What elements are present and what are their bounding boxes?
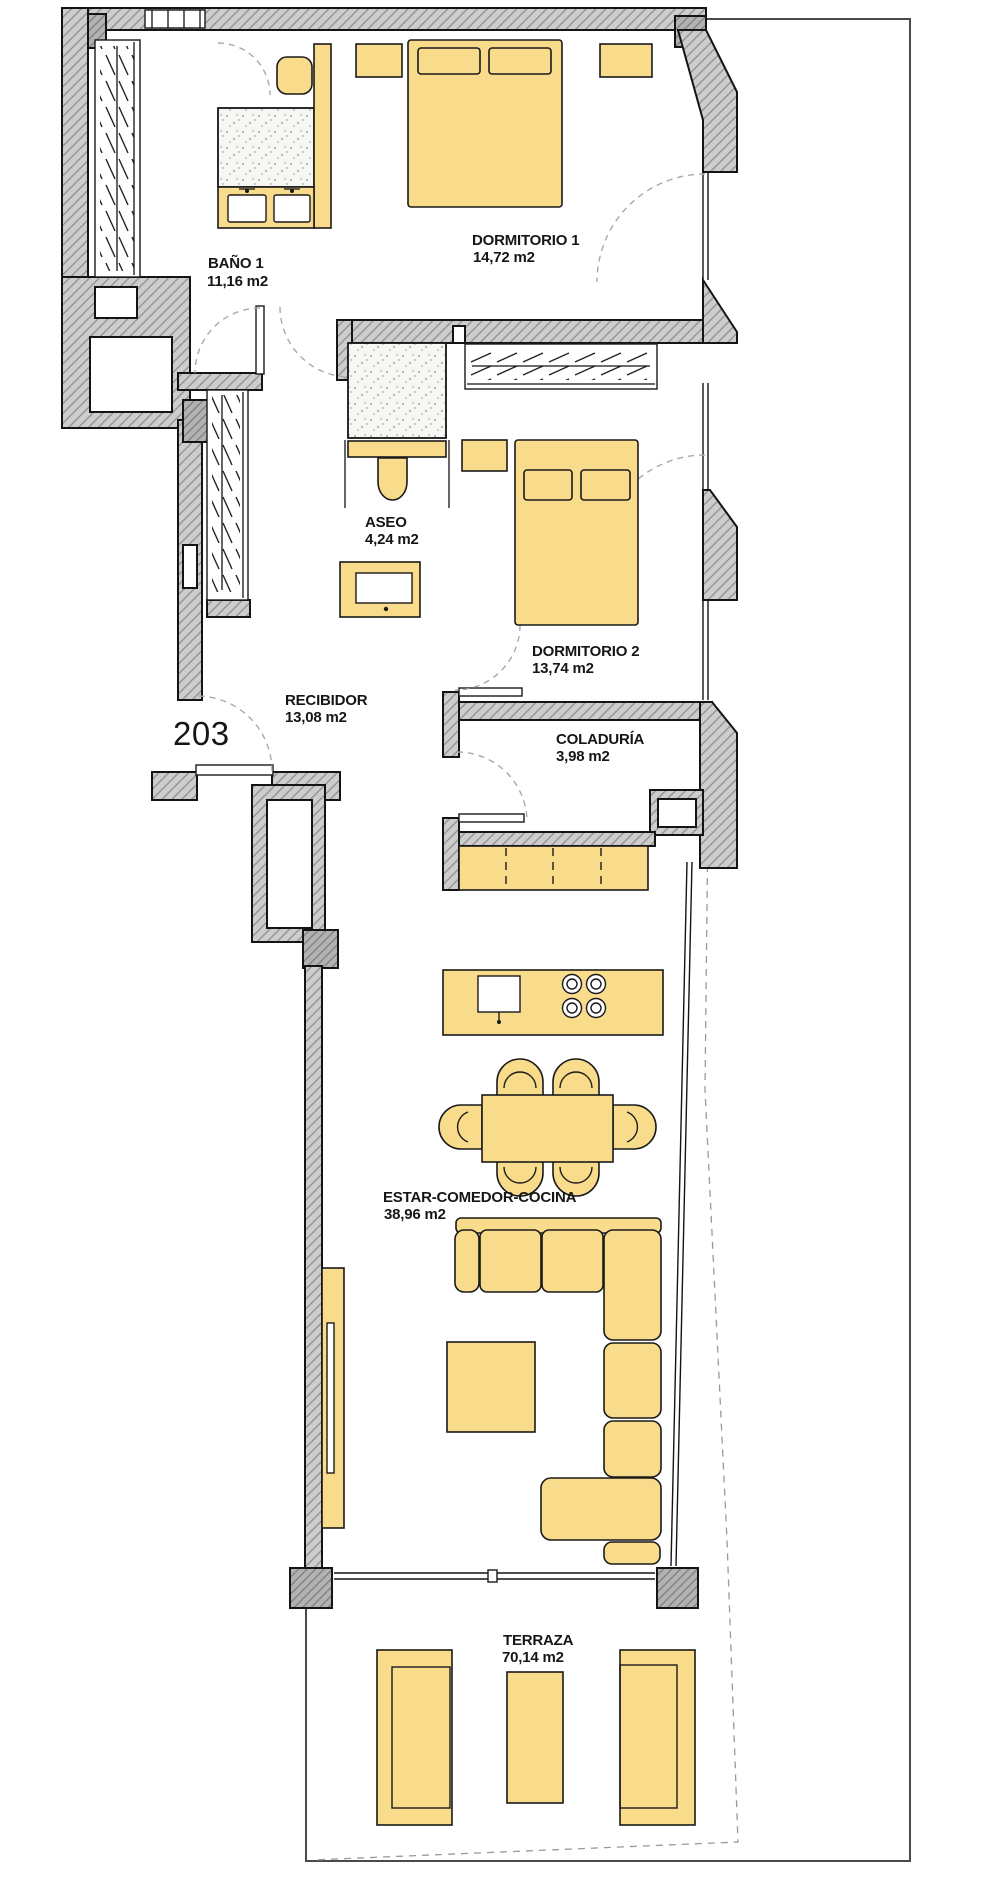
room-label-estar-area: 38,96 m2 xyxy=(384,1206,446,1223)
room-label-terraza-area: 70,14 m2 xyxy=(502,1649,564,1666)
window-dorm2-a xyxy=(703,383,708,490)
pillow xyxy=(581,470,630,500)
bathroom1-fixtures xyxy=(218,44,331,228)
sink-icon xyxy=(356,573,412,603)
room-label-recibidor-name: RECIBIDOR xyxy=(285,692,368,709)
room-label-dorm2-name: DORMITORIO 2 xyxy=(532,643,639,660)
sofa-chaise xyxy=(541,1478,661,1540)
sink-icon xyxy=(274,195,310,222)
room-label-recibidor-area: 13,08 m2 xyxy=(285,709,347,726)
wall-shaft xyxy=(90,337,172,412)
dining-set xyxy=(439,1059,656,1196)
sofa-seat xyxy=(542,1230,603,1292)
wall-step xyxy=(703,280,737,343)
tv-screen xyxy=(327,1323,334,1473)
sink-icon xyxy=(478,976,520,1012)
glass-wall-living xyxy=(671,862,692,1566)
pillow xyxy=(524,470,572,500)
room-label-dorm2-area: 13,74 m2 xyxy=(532,660,594,677)
bed-double xyxy=(515,440,638,625)
sofa-corner xyxy=(604,1230,661,1340)
wall-coladuria-right xyxy=(700,702,737,868)
shower-tray xyxy=(218,108,314,187)
nightstand xyxy=(356,44,402,77)
sink-icon xyxy=(228,195,266,222)
dorm2-furniture xyxy=(462,440,638,625)
shower-tray xyxy=(348,343,446,438)
column xyxy=(657,1568,698,1608)
aseo-fixtures xyxy=(340,343,449,617)
sun-lounger xyxy=(620,1650,695,1825)
toilet-icon xyxy=(378,458,407,500)
room-label-bano1-name: BAÑO 1 xyxy=(208,254,263,272)
room-label-aseo-area: 4,24 m2 xyxy=(365,531,419,548)
kitchen xyxy=(443,846,663,1035)
wall-step xyxy=(703,490,737,600)
column xyxy=(303,930,338,968)
door-leaf-entrance xyxy=(196,765,273,775)
dining-table xyxy=(482,1095,613,1162)
room-label-bano1-area: 11,16 m2 xyxy=(207,273,268,290)
floor-plan-page: BAÑO 1 11,16 m2 DORMITORIO 1 14,72 m2 AS… xyxy=(0,0,1000,1894)
toilet-icon xyxy=(277,57,312,94)
property-boundary xyxy=(306,19,910,1861)
door-leaf-bano1 xyxy=(256,306,264,374)
window-dorm1 xyxy=(703,172,708,280)
wall-slot xyxy=(453,326,465,343)
column xyxy=(290,1568,332,1608)
room-label-dorm1-name: DORMITORIO 1 xyxy=(472,232,579,249)
wardrobe-recibidor xyxy=(207,390,248,600)
room-label-terraza-name: TERRAZA xyxy=(503,1632,574,1649)
sofa-seat xyxy=(604,1421,661,1477)
sofa-seat xyxy=(604,1343,661,1418)
wall-step-dorm1 xyxy=(678,30,737,172)
room-label-estar-name: ESTAR-COMEDOR-COCINA xyxy=(383,1189,577,1206)
room-label-coladuria-name: COLADURÍA xyxy=(556,731,645,748)
terrace-furniture xyxy=(377,1650,695,1825)
floor-plan-drawing: BAÑO 1 11,16 m2 DORMITORIO 1 14,72 m2 AS… xyxy=(0,0,1000,1894)
appliance-slot xyxy=(658,799,696,827)
closet-dorm2 xyxy=(465,344,657,389)
pillow xyxy=(489,48,551,74)
room-label-coladuria-area: 3,98 m2 xyxy=(556,748,610,765)
wardrobe-bano1 xyxy=(95,40,140,277)
living-furniture xyxy=(322,1218,661,1564)
pocket-door-coladuria xyxy=(459,814,524,822)
unit-number-label: 203 xyxy=(173,715,230,752)
nightstand xyxy=(462,440,507,471)
room-label-aseo-name: ASEO xyxy=(365,514,407,531)
sliding-door-terrace xyxy=(334,1570,655,1582)
sun-lounger xyxy=(377,1650,452,1825)
wall-shaft xyxy=(95,287,137,318)
shower-step xyxy=(348,441,446,457)
window-top-wall xyxy=(145,10,205,28)
pillow xyxy=(418,48,480,74)
window-dorm2-b xyxy=(703,600,708,700)
sun-lounger xyxy=(507,1672,563,1803)
wall-shaft xyxy=(267,800,312,928)
bath-partition xyxy=(314,44,331,228)
room-label-dorm1-area: 14,72 m2 xyxy=(473,249,535,266)
sofa-armrest xyxy=(455,1230,479,1292)
sofa-end xyxy=(604,1542,660,1564)
chair xyxy=(439,1105,482,1149)
kitchen-island xyxy=(443,970,663,1035)
dorm1-furniture xyxy=(356,40,652,207)
sofa-seat xyxy=(480,1230,541,1292)
chair xyxy=(613,1105,656,1149)
nightstand xyxy=(600,44,652,77)
wall-niche xyxy=(183,545,197,588)
coffee-table xyxy=(447,1342,535,1432)
